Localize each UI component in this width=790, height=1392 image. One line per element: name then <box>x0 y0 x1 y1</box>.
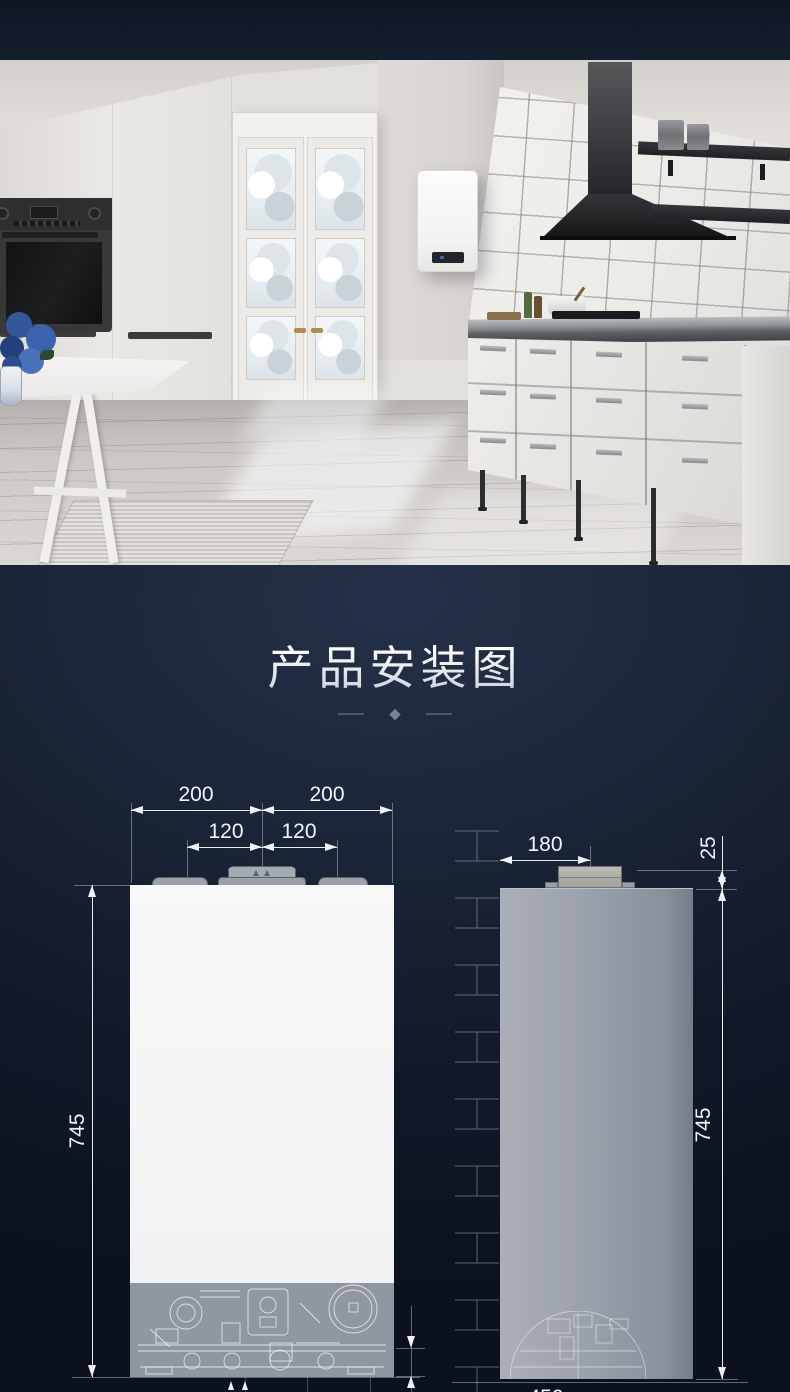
floor-rug <box>36 500 313 565</box>
dim-arrow <box>262 843 274 851</box>
extension-line <box>131 803 132 883</box>
drawer-handle <box>480 345 506 351</box>
extension-line <box>307 1377 308 1392</box>
cabinet-leg <box>480 470 485 508</box>
extension-line <box>696 1379 738 1380</box>
drawer-handle <box>530 393 556 399</box>
dim-label-745-left: 745 <box>66 1113 90 1148</box>
extension-line <box>696 889 737 890</box>
extension-line <box>370 1377 371 1392</box>
dim-label-200-right: 200 <box>309 783 344 807</box>
range-hood-lip <box>540 236 736 240</box>
dim-arrow <box>262 806 274 814</box>
dim-arrow <box>131 806 143 814</box>
connection-arrow <box>228 1381 234 1390</box>
dim-label-120-left: 120 <box>208 820 243 844</box>
drawer-handle <box>596 397 622 403</box>
cabinet-foot <box>478 507 487 511</box>
dim-arrow <box>88 1365 96 1377</box>
dim-arrow <box>250 806 262 814</box>
extension-line <box>392 803 393 883</box>
door-pane <box>246 238 296 308</box>
oven-buttons <box>14 221 80 226</box>
top-dark-band <box>0 0 790 60</box>
drawer-handle <box>682 403 708 409</box>
dim-arrow <box>407 1336 415 1348</box>
flue-mark <box>253 870 259 876</box>
flower-vase <box>0 366 22 406</box>
flue-base <box>218 877 306 885</box>
pipe-fitting <box>318 877 368 885</box>
baseline <box>452 1382 748 1383</box>
door-handle <box>311 328 323 333</box>
shelf-bracket <box>760 164 765 180</box>
cutting-board <box>487 312 521 320</box>
wall-hung-boiler-product <box>417 170 478 272</box>
drawer-handle <box>530 443 556 449</box>
cabinet-foot <box>574 537 583 541</box>
pipe-fitting <box>152 877 208 885</box>
dim-label-25: 25 <box>697 836 721 859</box>
storage-jar <box>687 124 709 150</box>
extension-line <box>74 885 130 886</box>
dim-label-450: 450 <box>528 1386 563 1392</box>
tall-cabinet-door <box>742 346 790 565</box>
dim-label-120-right: 120 <box>281 820 316 844</box>
dimension-line-745-left <box>92 885 93 1377</box>
divider-line-right <box>426 713 452 715</box>
side-view-body <box>500 888 693 1379</box>
dim-arrow <box>187 843 199 851</box>
dim-arrow <box>88 885 96 897</box>
storage-jar <box>658 120 684 150</box>
dimension-line-180 <box>500 860 590 861</box>
door-leaf-right <box>307 137 373 419</box>
boiler-indicator <box>440 256 444 259</box>
cabinet-handle-slot <box>128 332 212 339</box>
oven-handle <box>2 232 98 238</box>
installation-section: 产品安装图 ◆ 200 200 120 120 <box>0 565 790 1392</box>
door-pane <box>315 238 365 308</box>
door-pane <box>246 316 296 380</box>
flue-adapter <box>228 866 296 878</box>
drawer-handle <box>596 351 622 357</box>
dim-label-200-left: 200 <box>178 783 213 807</box>
drawer-handle <box>682 457 708 463</box>
extension-line <box>245 1377 246 1392</box>
drawer-handle <box>480 389 506 395</box>
drawer-handle <box>530 348 556 354</box>
door-pane <box>246 148 296 230</box>
dim-arrow <box>718 889 726 901</box>
dim-arrow <box>380 806 392 814</box>
hero-kitchen-photo <box>0 60 790 565</box>
flower-leaf <box>40 350 54 360</box>
wall-hatch <box>455 830 499 1392</box>
french-door <box>232 112 378 428</box>
dim-arrow <box>718 1367 726 1379</box>
cabinet-leg <box>651 488 656 564</box>
oven-display <box>30 206 58 219</box>
page: 产品安装图 ◆ 200 200 120 120 <box>0 0 790 1392</box>
baseline <box>72 1377 420 1378</box>
oven-knob <box>88 207 101 220</box>
side-bottom-blueprint <box>510 1311 646 1379</box>
section-title: 产品安装图 <box>268 632 523 698</box>
dim-label-745-right: 745 <box>692 1107 716 1142</box>
cabinet-foot <box>519 520 528 524</box>
dim-arrow <box>578 856 590 864</box>
flue-mark <box>264 870 270 876</box>
drawer-handle <box>682 355 708 361</box>
gas-hob <box>552 311 640 319</box>
flue-collar-seam <box>559 877 621 878</box>
shelf-bracket <box>668 160 673 176</box>
door-pane <box>315 148 365 230</box>
cabinet-leg <box>521 475 526 521</box>
oil-bottle <box>524 292 532 318</box>
door-handle <box>294 328 306 333</box>
door-pane <box>315 316 365 380</box>
front-view-body <box>130 885 394 1283</box>
door-leaf-left <box>238 137 304 419</box>
dim-arrow <box>500 856 512 864</box>
dim-arrow <box>250 843 262 851</box>
internals-blueprint <box>130 1283 394 1377</box>
drawer-handle <box>480 437 506 443</box>
cabinet-leg <box>576 480 581 538</box>
boiler-display <box>432 252 464 263</box>
extension-line <box>337 840 338 877</box>
drawer-handle <box>596 449 622 455</box>
divider-diamond-icon: ◆ <box>389 707 401 722</box>
dim-label-180: 180 <box>527 833 562 857</box>
dim-arrow <box>718 877 726 889</box>
range-hood-chimney <box>588 62 632 198</box>
dimension-line-745-right <box>722 914 723 1379</box>
dim-arrow <box>325 843 337 851</box>
dim-arrow <box>407 1376 415 1388</box>
oil-bottle <box>534 296 542 318</box>
divider-line-left <box>338 713 364 715</box>
